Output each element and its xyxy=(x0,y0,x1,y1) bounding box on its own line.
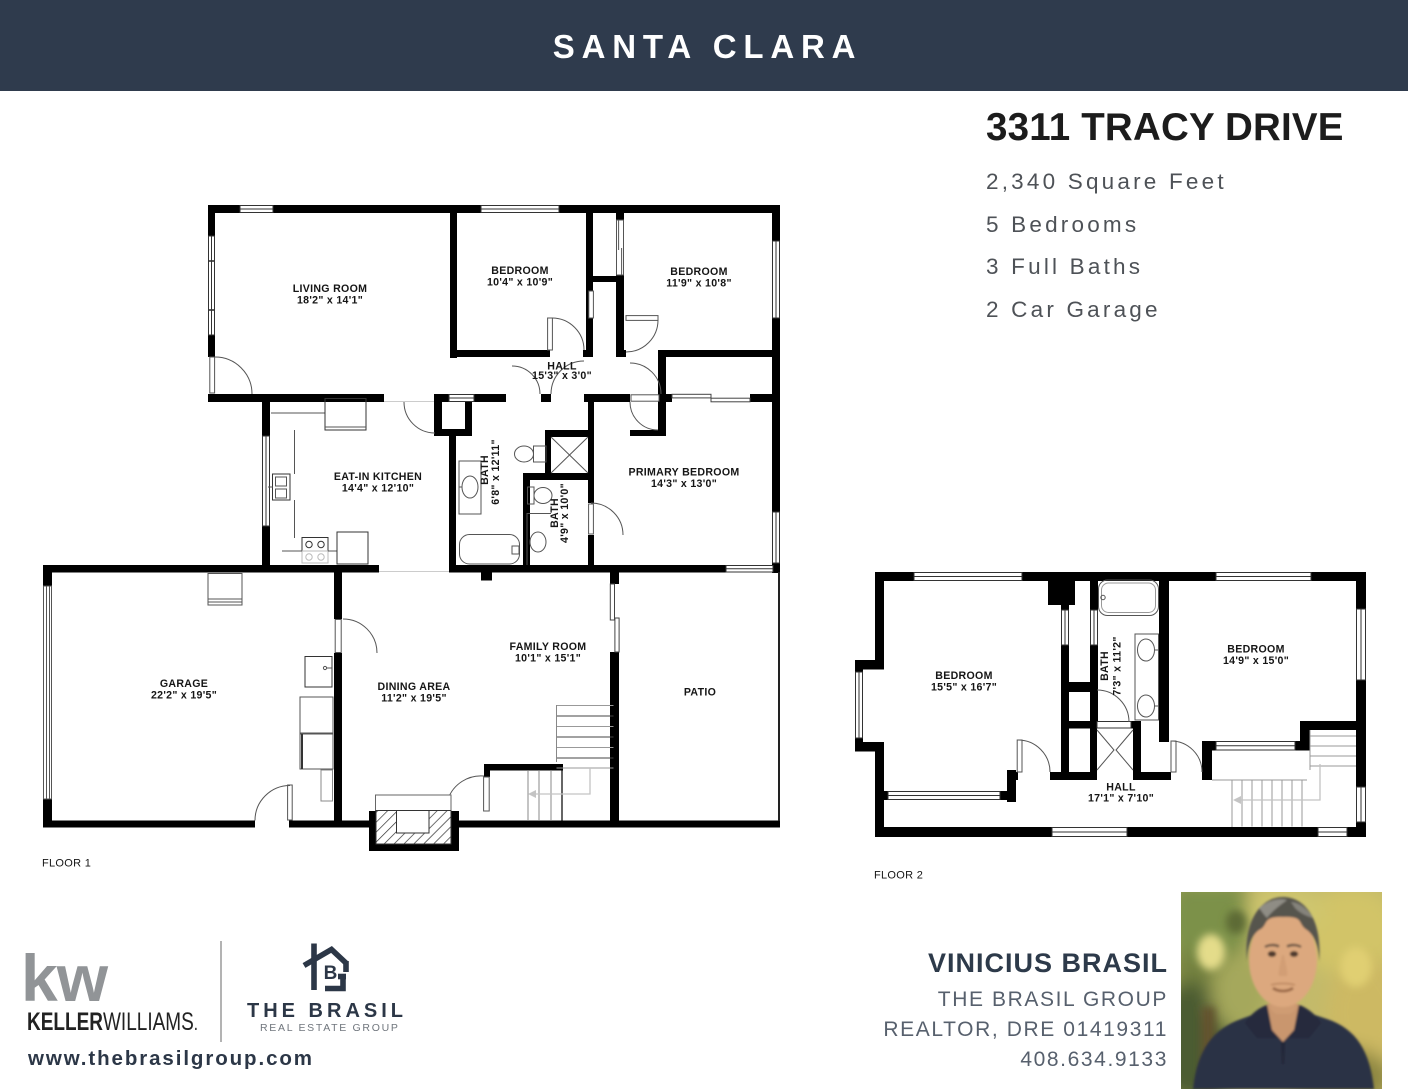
svg-text:FLOOR 1: FLOOR 1 xyxy=(42,858,91,870)
svg-text:BEDROOM: BEDROOM xyxy=(670,266,727,278)
svg-text:18'2" x 14'1": 18'2" x 14'1" xyxy=(297,295,363,307)
svg-text:14'9" x 15'0": 14'9" x 15'0" xyxy=(1223,655,1289,667)
svg-text:11'9" x 10'8": 11'9" x 10'8" xyxy=(666,278,732,290)
svg-text:PRIMARY BEDROOM: PRIMARY BEDROOM xyxy=(628,467,739,479)
svg-text:GARAGE: GARAGE xyxy=(160,678,208,690)
svg-text:FAMILY ROOM: FAMILY ROOM xyxy=(510,641,587,653)
svg-text:15'3" x 3'0": 15'3" x 3'0" xyxy=(532,370,592,382)
svg-text:14'4" x 12'10": 14'4" x 12'10" xyxy=(342,483,414,495)
svg-text:7'3" x 11'2": 7'3" x 11'2" xyxy=(1112,636,1124,695)
svg-text:4'9" x 10'0": 4'9" x 10'0" xyxy=(559,483,571,543)
svg-text:LIVING ROOM: LIVING ROOM xyxy=(293,283,368,295)
svg-text:BEDROOM: BEDROOM xyxy=(1227,644,1284,656)
svg-text:17'1" x 7'10": 17'1" x 7'10" xyxy=(1088,793,1154,805)
svg-text:6'8" x 12'11": 6'8" x 12'11" xyxy=(490,439,502,505)
svg-text:BATH: BATH xyxy=(1099,651,1111,681)
svg-text:11'2" x 19'5": 11'2" x 19'5" xyxy=(381,693,447,705)
svg-text:15'5" x 16'7": 15'5" x 16'7" xyxy=(931,682,997,694)
svg-text:EAT-IN KITCHEN: EAT-IN KITCHEN xyxy=(334,471,422,483)
svg-text:10'4" x 10'9": 10'4" x 10'9" xyxy=(487,277,553,289)
svg-text:14'3" x 13'0": 14'3" x 13'0" xyxy=(651,478,717,490)
svg-text:BEDROOM: BEDROOM xyxy=(491,265,548,277)
svg-text:DINING AREA: DINING AREA xyxy=(378,681,451,693)
svg-text:FLOOR 2: FLOOR 2 xyxy=(874,870,923,882)
svg-text:22'2" x 19'5": 22'2" x 19'5" xyxy=(151,690,217,702)
svg-text:BEDROOM: BEDROOM xyxy=(935,670,992,682)
svg-text:10'1" x 15'1": 10'1" x 15'1" xyxy=(515,653,581,665)
svg-text:PATIO: PATIO xyxy=(684,687,716,699)
